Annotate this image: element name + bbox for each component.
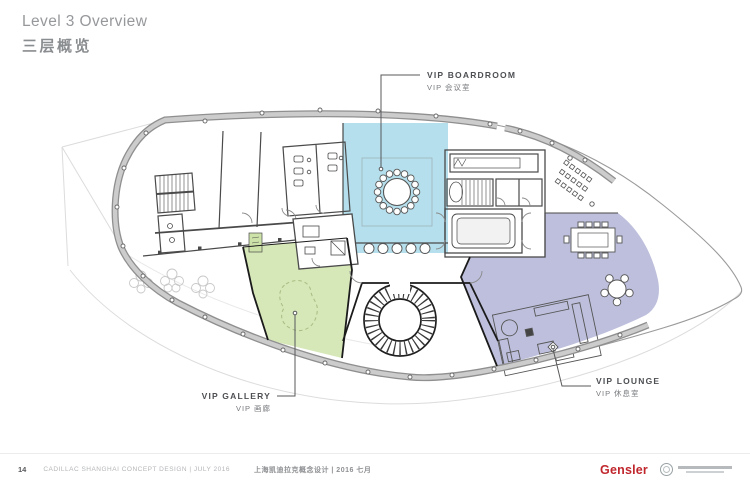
core-block: [436, 150, 545, 257]
footer-project-zh: 上海凯迪拉克概念设计 | 2016 七月: [254, 465, 371, 475]
stair-west: [155, 173, 195, 213]
gallery-label-zh: VIP 画廊: [236, 403, 271, 413]
boardroom-label-zh: VIP 会议室: [427, 82, 471, 92]
gallery-label-en: VIP GALLERY: [202, 391, 271, 401]
partner-logo-text-lines: [678, 465, 732, 475]
page-number: 14: [18, 465, 26, 474]
partner-emblem-logo: [660, 463, 732, 476]
slide: Level 3 Overview 三层概览: [0, 0, 750, 485]
gallery-storage-box: [249, 233, 262, 252]
footer: 14 CADILLAC SHANGHAI CONCEPT DESIGN | JU…: [0, 453, 750, 485]
footer-project-en: CADILLAC SHANGHAI CONCEPT DESIGN | JULY …: [43, 466, 230, 473]
gensler-logo: Gensler: [600, 463, 648, 477]
boardroom-label-en: VIP BOARDROOM: [427, 70, 516, 80]
spiral-stair: [364, 281, 436, 356]
lounge-label-en: VIP LOUNGE: [596, 376, 660, 386]
circular-emblem-icon: [660, 463, 673, 476]
floor-plan: VIP BOARDROOM VIP 会议室 VIP GALLERY VIP 画廊…: [0, 0, 750, 485]
lounge-label-zh: VIP 休息室: [596, 388, 640, 398]
boardroom-table: [374, 169, 420, 215]
